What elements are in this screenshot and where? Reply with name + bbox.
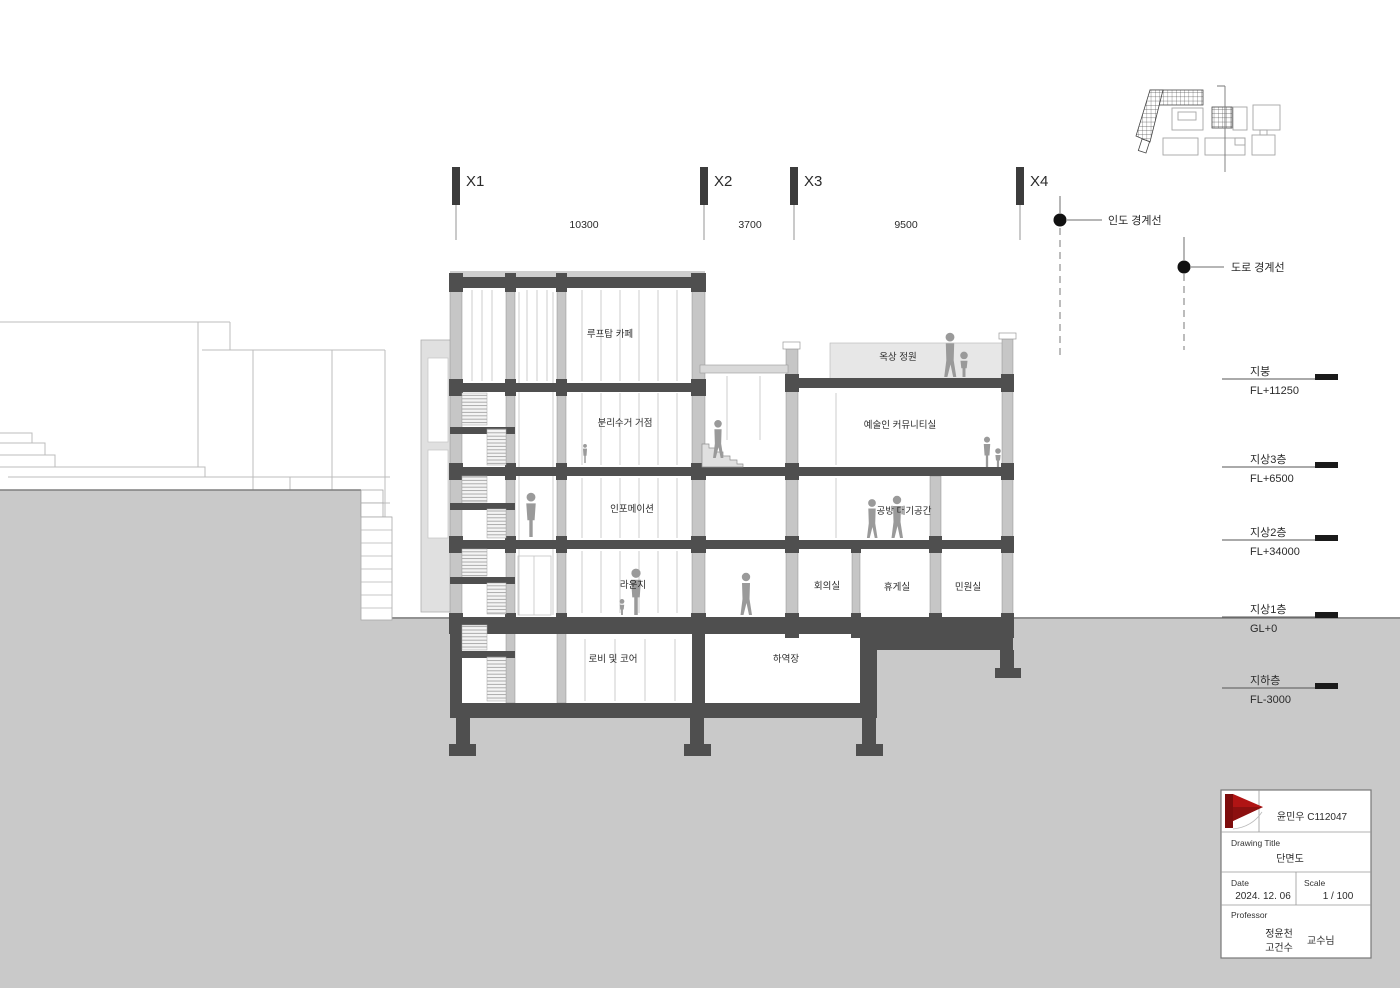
date-value: 2024. 12. 06 <box>1235 891 1291 902</box>
section-drawing-page: 루프탑 카페 분리수거 거점 인포메이션 라운지 로비 및 코어 하역장 옥상 … <box>0 0 1400 988</box>
room-label-roof-garden: 옥상 정원 <box>879 352 917 363</box>
room-label-civil-room: 민원실 <box>955 582 981 593</box>
level-b1-value: FL-3000 <box>1250 694 1291 706</box>
level-roof-value: FL+11250 <box>1250 385 1299 397</box>
grid-label-x3: X3 <box>804 173 822 190</box>
professor-suffix: 교수님 <box>1307 935 1335 947</box>
room-label-lounge: 라운지 <box>620 580 646 591</box>
dimension-x2-x3: 3700 <box>738 219 762 231</box>
sidewalk-boundary-label: 인도 경계선 <box>1108 214 1162 227</box>
grid-label-x2: X2 <box>714 173 732 190</box>
room-label-rest-room: 휴게실 <box>884 582 910 593</box>
room-label-lobby-core: 로비 및 코어 <box>589 653 638 665</box>
room-label-loading-dock: 하역장 <box>773 653 799 665</box>
room-label-rooftop-cafe: 루프탑 카페 <box>587 328 633 340</box>
level-3f-name: 지상3층 <box>1250 453 1286 466</box>
dimension-x1-x2: 10300 <box>569 219 598 231</box>
site-key-plan <box>1136 86 1280 172</box>
drawing-title-value: 단면도 <box>1276 853 1304 865</box>
scale-value: 1 / 100 <box>1323 891 1354 902</box>
room-label-information: 인포메이션 <box>610 504 654 515</box>
room-label-recycling-hub: 분리수거 거점 <box>597 417 652 429</box>
level-b1-name: 지하층 <box>1250 673 1280 687</box>
grid-label-x1: X1 <box>466 173 484 190</box>
level-1f-name: 지상1층 <box>1250 603 1286 616</box>
room-label-artist-community: 예술인 커뮤니티실 <box>864 420 937 431</box>
annex-wall <box>421 340 453 612</box>
level-2f-value: FL+34000 <box>1250 546 1300 558</box>
boundary-markers: 인도 경계선 도로 경계선 <box>1054 196 1285 356</box>
date-label: Date <box>1231 878 1249 888</box>
dimension-x3-x4: 9500 <box>894 219 918 231</box>
drawing-title-label: Drawing Title <box>1231 838 1280 848</box>
level-1f-value: GL+0 <box>1250 623 1277 635</box>
scale-label: Scale <box>1304 878 1326 888</box>
grid-marks: X1 X2 X3 X4 10300 3700 9500 <box>452 167 1048 240</box>
level-roof-name: 지붕 <box>1250 365 1270 378</box>
level-3f-value: FL+6500 <box>1250 473 1294 485</box>
author-id: 윤민우 C112047 <box>1277 811 1348 823</box>
title-block: 윤민우 C112047 Drawing Title 단면도 Date 2024.… <box>1221 790 1371 958</box>
professor-name-2: 고건수 <box>1265 942 1293 954</box>
room-label-meeting-room: 회의실 <box>814 581 840 592</box>
road-boundary-label: 도로 경계선 <box>1231 261 1285 274</box>
level-2f-name: 지상2층 <box>1250 526 1286 539</box>
room-label-workshop-waiting: 공방 대기공간 <box>876 506 931 517</box>
section-drawing: 루프탑 카페 분리수거 거점 인포메이션 라운지 로비 및 코어 하역장 옥상 … <box>0 0 1400 988</box>
professor-label: Professor <box>1231 910 1268 920</box>
professor-name-1: 정윤천 <box>1265 928 1293 940</box>
grid-label-x4: X4 <box>1030 173 1048 190</box>
